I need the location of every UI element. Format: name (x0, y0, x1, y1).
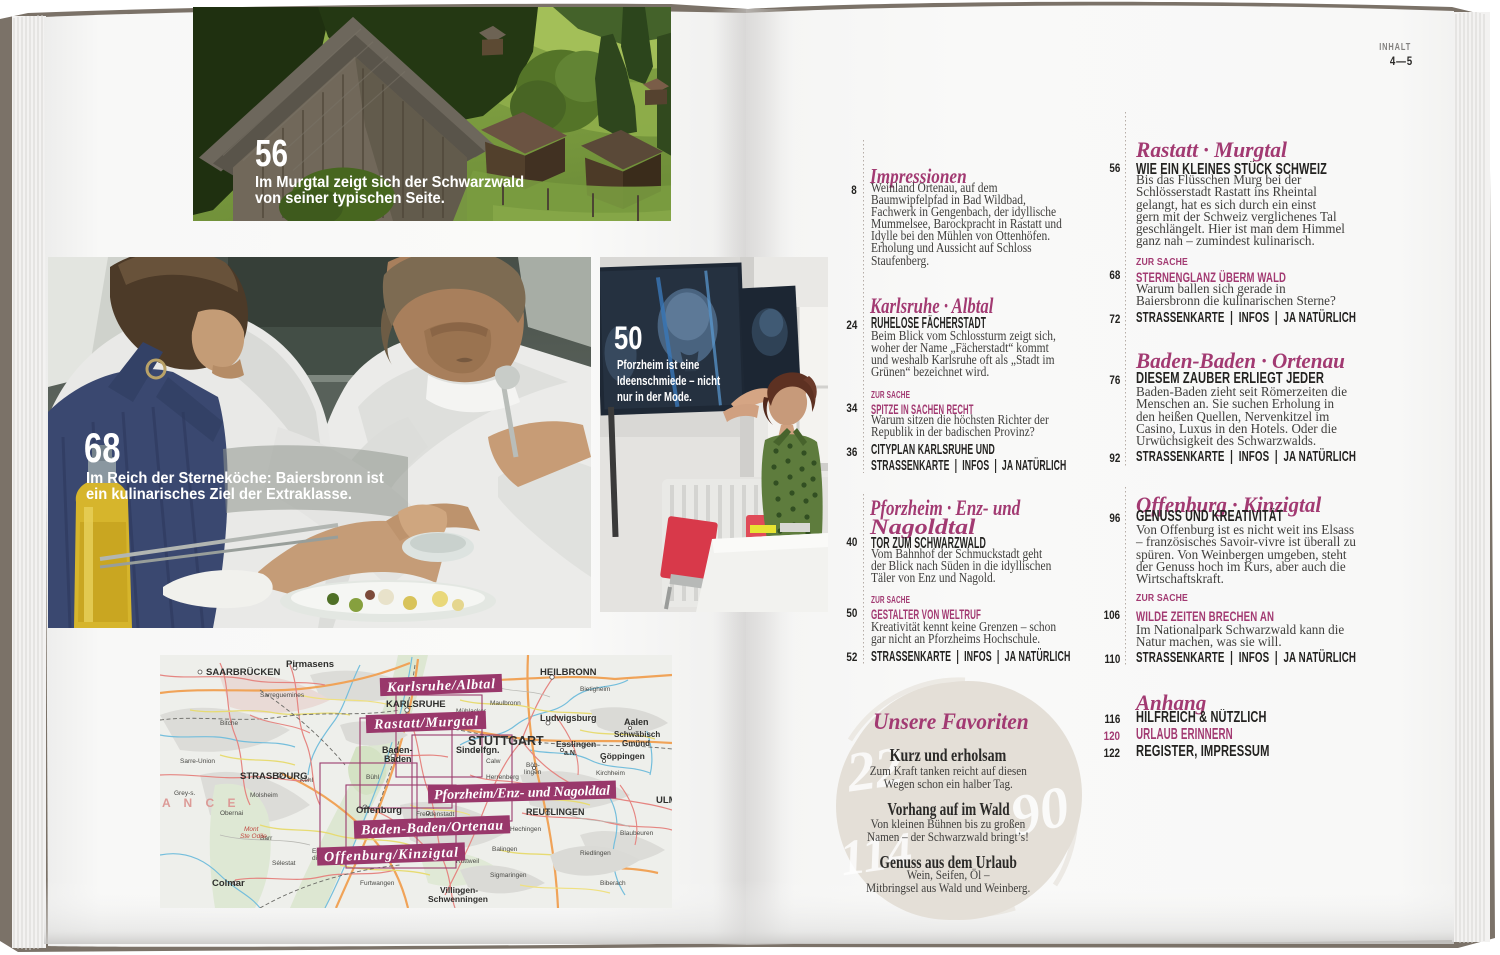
svg-text:Schwenningen: Schwenningen (428, 894, 488, 904)
svg-text:Gmünd: Gmünd (622, 739, 650, 748)
svg-text:STRASBOURG: STRASBOURG (240, 771, 308, 782)
svg-text:Mont: Mont (244, 826, 260, 833)
svg-text:Esslingen: Esslingen (556, 739, 596, 749)
svg-text:Bietigheim: Bietigheim (580, 686, 610, 693)
svg-text:Aalen: Aalen (624, 717, 649, 727)
svg-text:REUTLINGEN: REUTLINGEN (526, 807, 585, 817)
svg-text:ULM: ULM (656, 795, 672, 806)
svg-text:Colmar: Colmar (212, 878, 245, 889)
svg-text:Pirmasens: Pirmasens (286, 659, 334, 670)
svg-text:Riedlingen: Riedlingen (580, 850, 611, 857)
svg-text:Baden: Baden (384, 754, 412, 764)
svg-text:Sindelfgn.: Sindelfgn. (456, 745, 500, 755)
svg-text:Bühl: Bühl (366, 774, 380, 781)
svg-text:Kirchheim: Kirchheim (596, 770, 625, 777)
svg-text:SAARBRÜCKEN: SAARBRÜCKEN (206, 667, 281, 678)
svg-text:Furtwangen: Furtwangen (360, 880, 395, 887)
svg-text:Sarre-Union: Sarre-Union (180, 758, 215, 765)
svg-text:Freudenstadt: Freudenstadt (416, 811, 454, 818)
svg-text:Sélestat: Sélestat (272, 860, 296, 867)
svg-text:Blaubeuren: Blaubeuren (620, 830, 654, 837)
svg-text:Molsheim: Molsheim (250, 792, 278, 799)
svg-text:Bitche: Bitche (220, 720, 238, 727)
svg-text:Maulbronn: Maulbronn (490, 700, 521, 707)
svg-text:A N C E: A N C E (162, 796, 241, 810)
svg-text:Böb-: Böb- (526, 762, 540, 769)
svg-text:Sigmaringen: Sigmaringen (490, 872, 527, 879)
svg-text:Schwäbisch: Schwäbisch (614, 730, 660, 739)
svg-text:KARLSRUHE: KARLSRUHE (386, 699, 446, 710)
svg-text:Biberach: Biberach (600, 880, 626, 887)
svg-text:Göppingen: Göppingen (600, 751, 645, 761)
svg-text:Balingen: Balingen (492, 846, 518, 853)
svg-text:Obernai: Obernai (220, 810, 243, 817)
svg-text:lingen: lingen (524, 769, 542, 776)
svg-text:Offenburg: Offenburg (356, 805, 402, 816)
svg-text:Kehl: Kehl (300, 777, 314, 784)
svg-text:Calw: Calw (486, 758, 501, 765)
svg-text:HEILBRONN: HEILBRONN (540, 667, 597, 678)
svg-text:Sarreguemines: Sarreguemines (260, 692, 305, 699)
svg-text:Herrenberg: Herrenberg (486, 774, 519, 781)
svg-text:Ste Odile: Ste Odile (240, 833, 267, 840)
svg-text:Hechingen: Hechingen (510, 826, 541, 833)
svg-text:a.N.: a.N. (564, 750, 577, 757)
svg-text:Ludwigsburg: Ludwigsburg (540, 713, 597, 723)
